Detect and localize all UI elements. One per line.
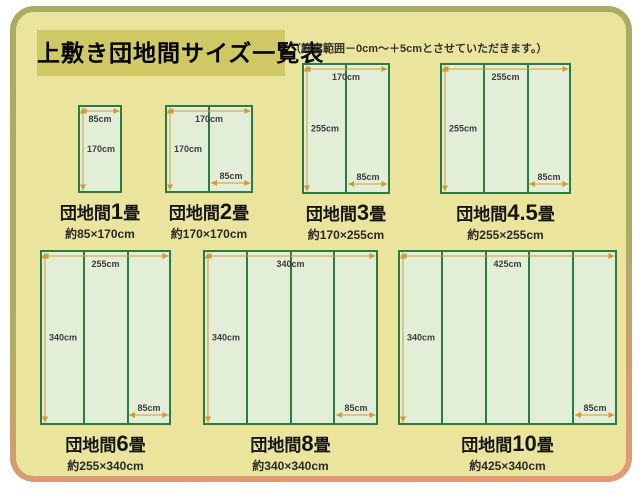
diagram-danchima-10jo: 425cm340cm85cm団地間10畳約425×340cm [398,250,617,425]
diagram-size: 約85×170cm [60,225,140,242]
mat-diagram: 170cm170cm85cm [165,105,253,193]
diagram-name: 団地間4.5畳 [456,200,555,225]
diagram-size: 約255×255cm [456,226,555,243]
diagram-size: 約425×340cm [461,457,553,474]
page: 上敷き団地間サイズ一覧表 （許容範囲－0cm〜＋5cmとさせていただきます。） … [0,0,640,494]
diagram-danchima-3jo: 170cm255cm85cm団地間3畳約170×255cm [302,63,390,194]
mat-diagram: 425cm340cm85cm [398,250,617,425]
mat-diagram: 85cm170cm [78,105,122,193]
diagram-caption: 団地間3畳約170×255cm [306,200,386,243]
diagram-danchima-1jo: 85cm170cm団地間1畳約85×170cm [78,105,122,193]
diagram-name: 団地間3畳 [306,200,386,225]
diagram-danchima-6jo: 255cm340cm85cm団地間6畳約255×340cm [40,250,171,425]
measure-label: 255cm [311,124,339,134]
measure-label: 170cm [87,144,115,154]
diagram-caption: 団地間1畳約85×170cm [60,199,140,242]
measure-label: 255cm [449,124,477,134]
measure-label: 85cm [537,172,560,182]
measure-label: 85cm [356,172,379,182]
diagram-caption: 団地間10畳約425×340cm [461,431,553,474]
diagram-caption: 団地間2畳約170×170cm [169,199,249,242]
measure-label: 255cm [491,72,519,82]
measure-label: 85cm [137,403,160,413]
measure-label: 85cm [88,114,111,124]
diagram-danchima-8jo: 340cm340cm85cm団地間8畳約340×340cm [203,250,378,425]
measure-label: 340cm [212,333,240,343]
panel-frame: 上敷き団地間サイズ一覧表 （許容範囲－0cm〜＋5cmとさせていただきます。） … [10,6,632,482]
mat-diagram: 170cm255cm85cm [302,63,390,194]
diagram-caption: 団地間8畳約340×340cm [250,431,330,474]
diagram-size: 約170×170cm [169,225,249,242]
diagram-name: 団地間10畳 [461,431,553,456]
diagram-name: 団地間1畳 [60,199,140,224]
measure-label: 340cm [49,333,77,343]
mat-diagram: 255cm255cm85cm [440,63,571,194]
diagram-name: 団地間2畳 [169,199,249,224]
measure-label: 255cm [91,259,119,269]
measure-label: 85cm [344,403,367,413]
diagram-name: 団地間6畳 [65,431,145,456]
tolerance-note: （許容範囲－0cm〜＋5cmとさせていただきます。） [290,40,547,56]
panel: 上敷き団地間サイズ一覧表 （許容範囲－0cm〜＋5cmとさせていただきます。） … [16,12,626,476]
diagram-size: 約340×340cm [250,457,330,474]
diagram-caption: 団地間6畳約255×340cm [65,431,145,474]
diagram-size: 約170×255cm [306,226,386,243]
measure-label: 170cm [174,144,202,154]
measure-label: 85cm [219,171,242,181]
diagram-name: 団地間8畳 [250,431,330,456]
measure-label: 425cm [493,259,521,269]
mat-diagram: 340cm340cm85cm [203,250,378,425]
diagram-danchima-4-5jo: 255cm255cm85cm団地間4.5畳約255×255cm [440,63,571,194]
measure-label: 170cm [332,72,360,82]
page-title: 上敷き団地間サイズ一覧表 [37,30,285,76]
diagram-caption: 団地間4.5畳約255×255cm [456,200,555,243]
mat-diagram: 255cm340cm85cm [40,250,171,425]
measure-label: 340cm [407,333,435,343]
diagram-size: 約255×340cm [65,457,145,474]
measure-label: 340cm [276,259,304,269]
measure-label: 85cm [583,403,606,413]
diagram-danchima-2jo: 170cm170cm85cm団地間2畳約170×170cm [165,105,253,193]
measure-label: 170cm [195,114,223,124]
